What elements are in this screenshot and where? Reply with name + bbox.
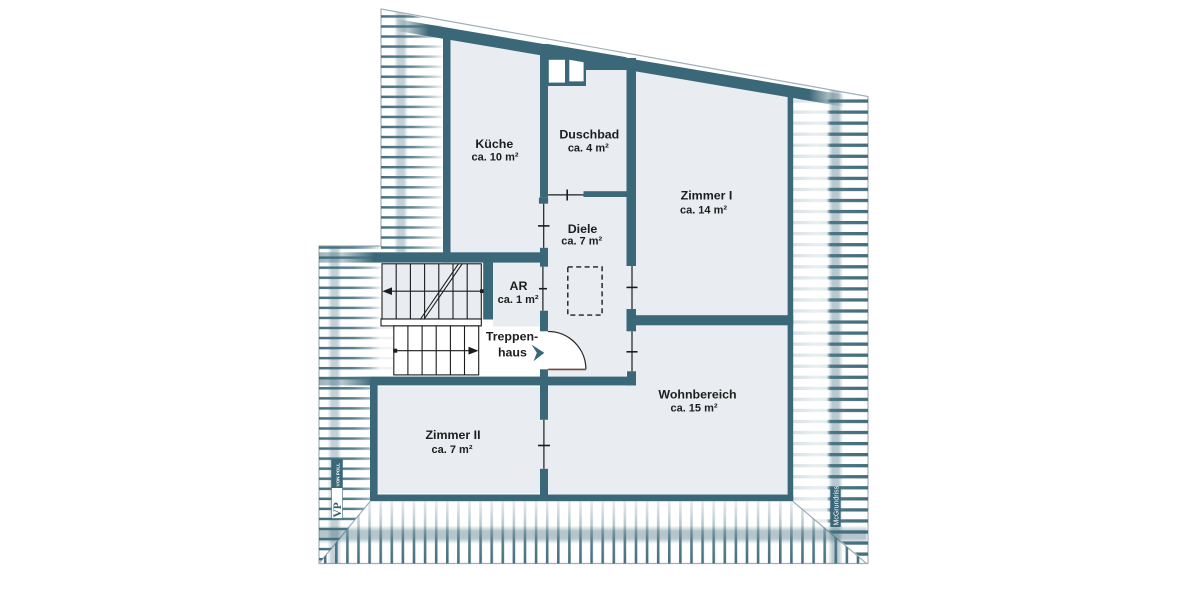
svg-text:Küche: Küche — [475, 137, 513, 151]
svg-text:VON POLL: VON POLL — [335, 463, 340, 487]
svg-text:ca. 7 m²: ca. 7 m² — [561, 236, 602, 248]
svg-text:ca. 14 m²: ca. 14 m² — [680, 205, 727, 217]
svg-text:AR: AR — [510, 279, 528, 293]
svg-text:Diele: Diele — [568, 222, 598, 236]
svg-text:Duschbad: Duschbad — [559, 128, 619, 142]
svg-text:VP: VP — [332, 502, 344, 517]
svg-text:ca. 1 m²: ca. 1 m² — [498, 294, 539, 306]
svg-text:ca. 7 m²: ca. 7 m² — [432, 444, 473, 456]
svg-text:haus: haus — [498, 346, 527, 360]
svg-text:ca. 4 m²: ca. 4 m² — [568, 142, 609, 154]
svg-text:ca. 10 m²: ca. 10 m² — [471, 152, 518, 164]
svg-text:Wohnbereich: Wohnbereich — [658, 387, 736, 401]
svg-text:Zimmer II: Zimmer II — [425, 428, 480, 442]
svg-text:Treppen-: Treppen- — [486, 330, 538, 344]
svg-text:McGrundriss: McGrundriss — [834, 485, 841, 525]
svg-text:ca. 15 m²: ca. 15 m² — [670, 403, 717, 415]
svg-text:Zimmer I: Zimmer I — [681, 189, 733, 203]
